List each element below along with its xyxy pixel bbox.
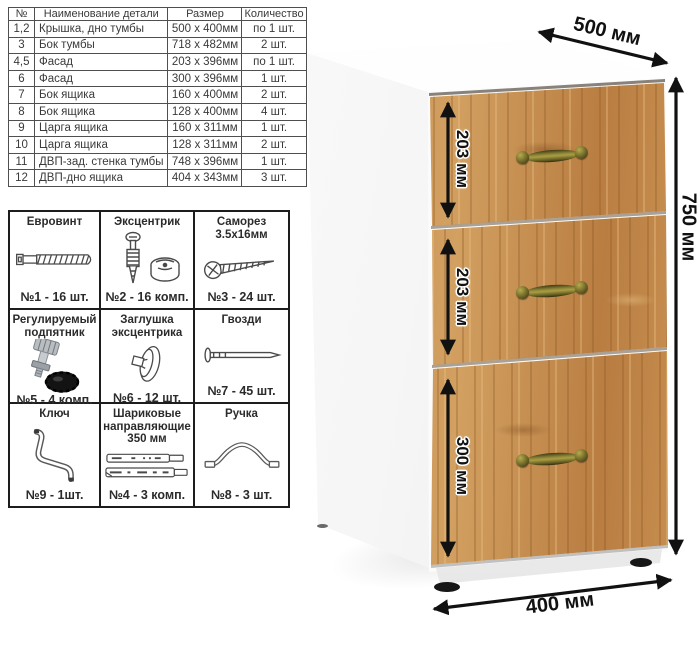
drawer1-dimension-label: 203 мм xyxy=(452,130,472,188)
height-dimension-label: 750 мм xyxy=(677,193,700,262)
cabinet-foot xyxy=(434,582,460,592)
depth-dimension-label: 500 мм xyxy=(571,13,643,51)
width-dimension-label: 400 мм xyxy=(525,588,596,619)
cabinet-photo: 500 мм 750 мм 400 мм 203 мм 203 мм 300 м… xyxy=(0,0,700,648)
drawer2-dimension-label: 203 мм xyxy=(452,268,472,326)
drawer3-dimension-label: 300 мм xyxy=(452,437,472,495)
cabinet-foot xyxy=(317,524,328,528)
cabinet-foot xyxy=(630,558,652,567)
